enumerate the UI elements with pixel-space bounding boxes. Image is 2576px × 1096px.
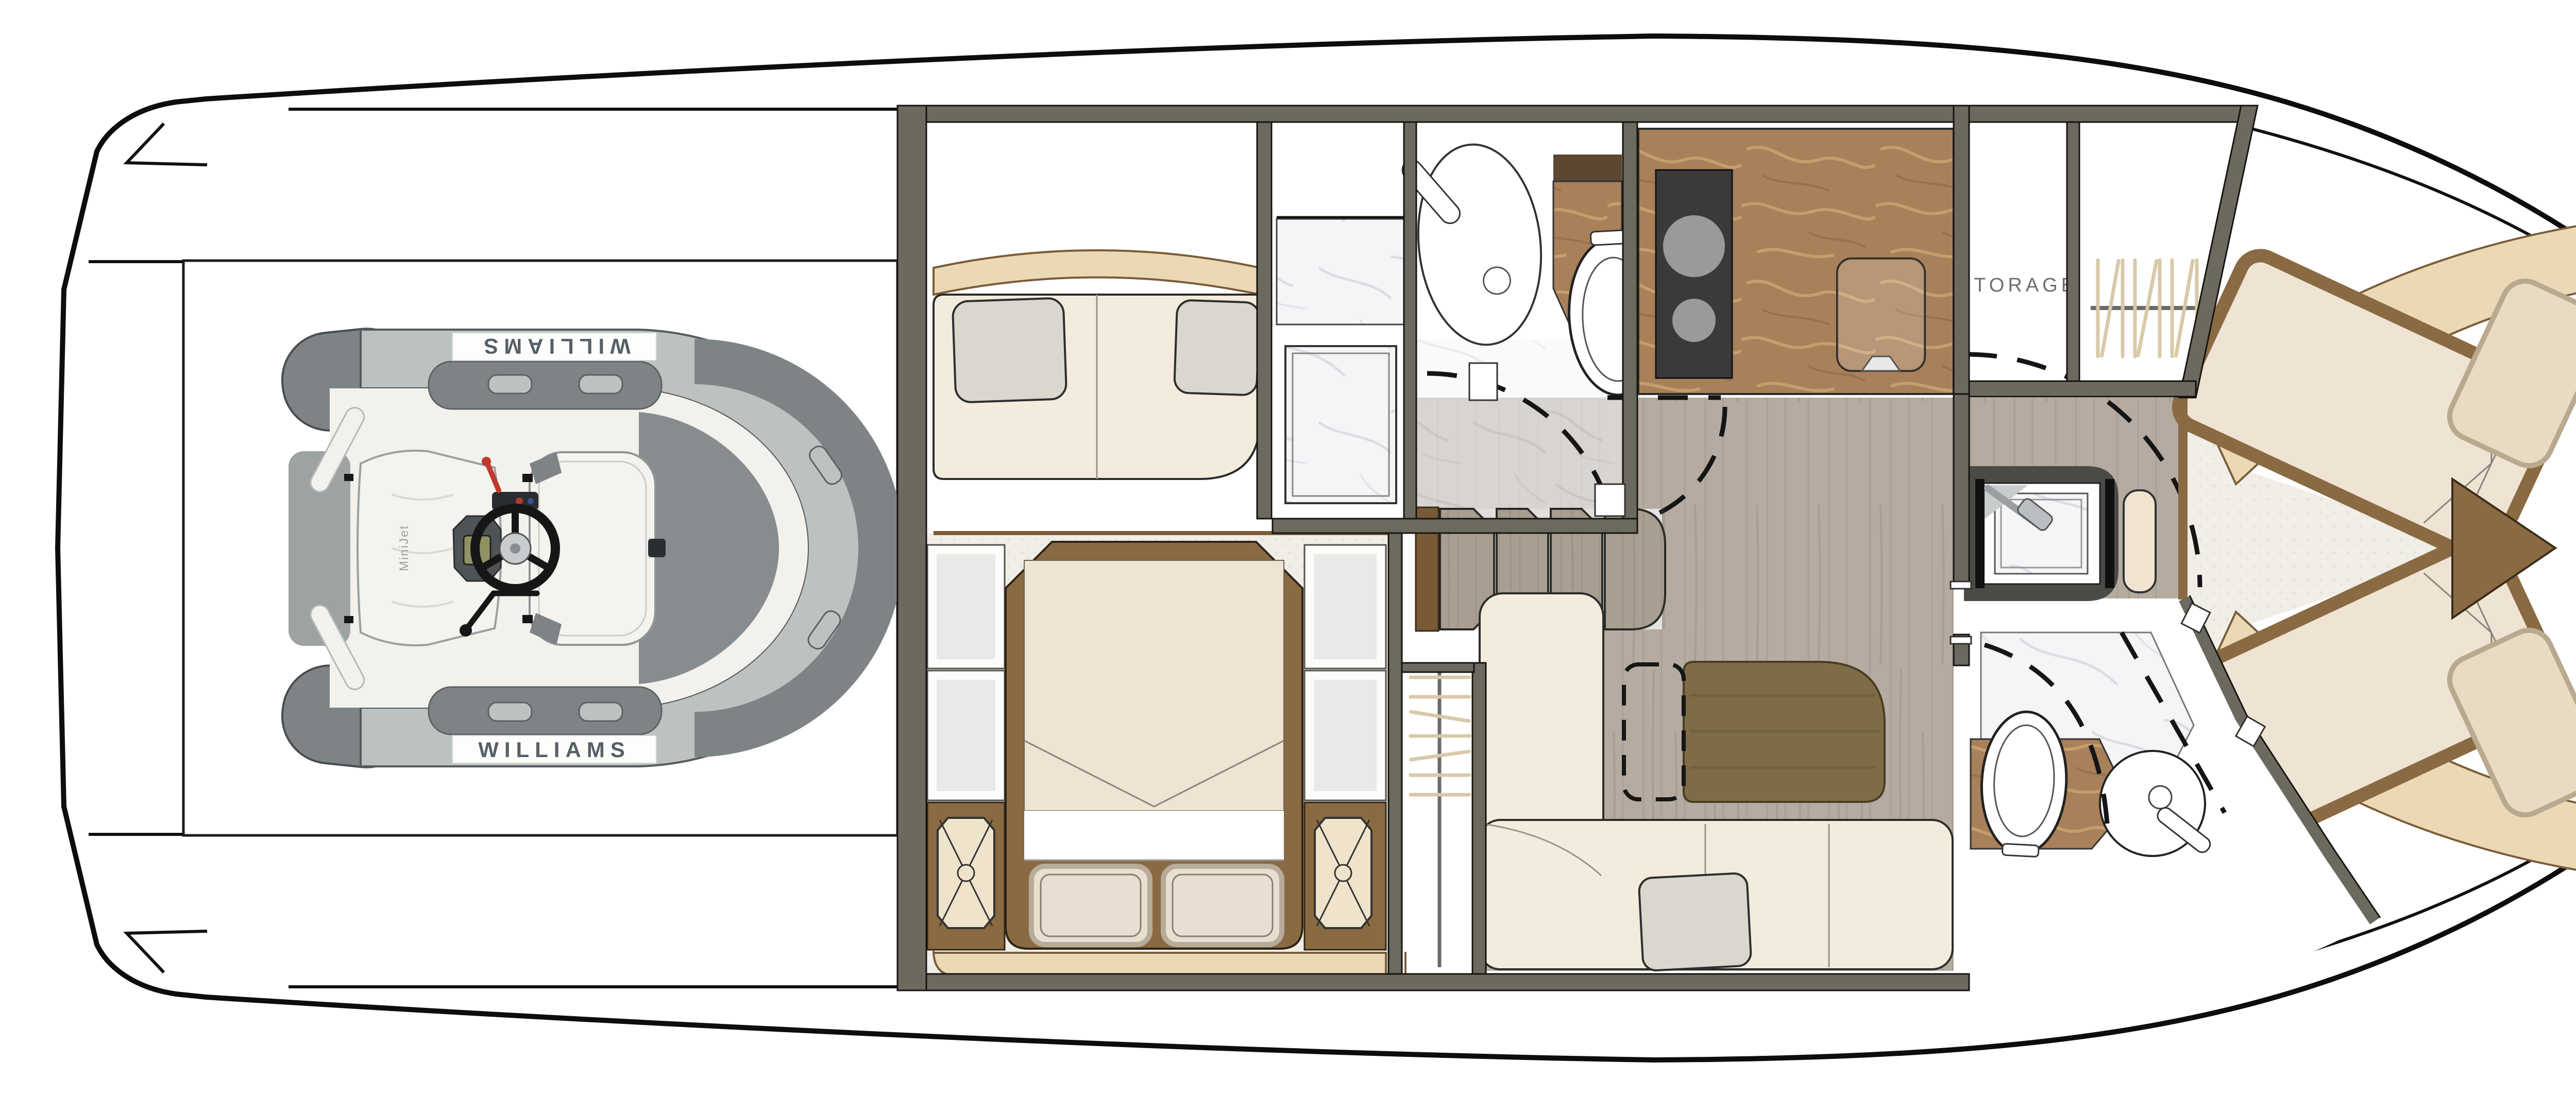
tender-handle (579, 375, 622, 393)
cabinet-inset (1314, 680, 1377, 791)
tender-kill-knob (482, 457, 491, 466)
wall-bottom (926, 974, 1969, 990)
tender-handle (488, 703, 532, 721)
cabinet-inset (1314, 554, 1377, 659)
tender-handle (579, 703, 622, 721)
tender-fitting (522, 474, 533, 482)
door-jamb (1951, 581, 1971, 589)
door-jamb (1951, 637, 1971, 644)
x-stool-niche-stbd (1304, 802, 1386, 950)
pillow (1638, 873, 1751, 971)
shower-glass (2105, 479, 2114, 588)
wall-mid-right (1954, 394, 1969, 586)
burner (1663, 215, 1725, 277)
tender-bow-latch (648, 539, 666, 557)
burner (1672, 299, 1716, 342)
bed-pillow (1031, 866, 1150, 945)
tender-brand-bottom: WILLIAMS (478, 738, 631, 762)
bathroom-shelf (1553, 155, 1622, 181)
wardrobe-aft (1406, 664, 1472, 973)
tender-pad-bottom (429, 687, 662, 734)
pillow (1174, 300, 1260, 395)
pillow (953, 298, 1067, 402)
steering-wheel-hub-cap (510, 543, 520, 554)
vanity-counter (1277, 219, 1404, 324)
wall-cabin-lower-right (1388, 533, 1402, 974)
wall-storage-divider (2067, 122, 2079, 381)
tender-garage: WILLIAMS WILLIAMS MiniJet (183, 261, 897, 835)
cabinet-inset (937, 554, 995, 659)
bed-pillow (1163, 866, 1282, 945)
door-jamb (1469, 363, 1497, 400)
toilet-hinge (2002, 844, 2039, 857)
bed-sheet-band (1024, 811, 1284, 860)
x-stool-button (1335, 865, 1351, 881)
wall-bathroom-bottom (1273, 519, 1637, 533)
tender-pad-top (429, 362, 662, 409)
yacht-floor-plan: WILLIAMS WILLIAMS MiniJet (0, 0, 2576, 1096)
walkway-step-band (934, 951, 1386, 977)
shower-glass (1975, 479, 1985, 588)
tender-model-label: MiniJet (397, 525, 411, 571)
tender: WILLIAMS WILLIAMS MiniJet (278, 324, 881, 772)
tender-brand-top: WILLIAMS (478, 334, 631, 358)
cabin-threshold (2178, 398, 2188, 600)
tender-fitting (344, 616, 353, 623)
aft-cabin-bed (1006, 542, 1302, 949)
wall-galley-left (1623, 122, 1637, 533)
tender-handle (488, 375, 532, 393)
shower-bench (2124, 490, 2156, 592)
wall-aft-cabin-right (1257, 122, 1272, 519)
storage-label: STORAGE (1957, 275, 2078, 296)
x-stool-button (958, 865, 974, 881)
wall-wardrobe-right (1472, 663, 1486, 974)
wall-storage-bottom (1969, 381, 2196, 397)
cabinet-inset (937, 680, 995, 791)
bed-mattress (1024, 560, 1284, 811)
wall-galley-right (1954, 106, 1969, 394)
tender-fitting (344, 474, 353, 481)
tender-tiller-knob (460, 624, 472, 637)
tender-dash-button (528, 498, 534, 504)
tender-dash-button (516, 498, 523, 505)
tender-engine-cover (530, 452, 655, 645)
bulkhead-aft (897, 106, 926, 990)
x-stool-niche-port (927, 802, 1005, 950)
galley-sink-sheen (1837, 259, 1925, 371)
shower-tray (1285, 346, 1396, 503)
wall-top (926, 106, 2241, 122)
wall-wardrobe-top (1402, 663, 1474, 672)
door-jamb (1595, 484, 1625, 516)
tender-fitting (522, 615, 533, 623)
wall-bathroom-divider (1404, 122, 1416, 519)
